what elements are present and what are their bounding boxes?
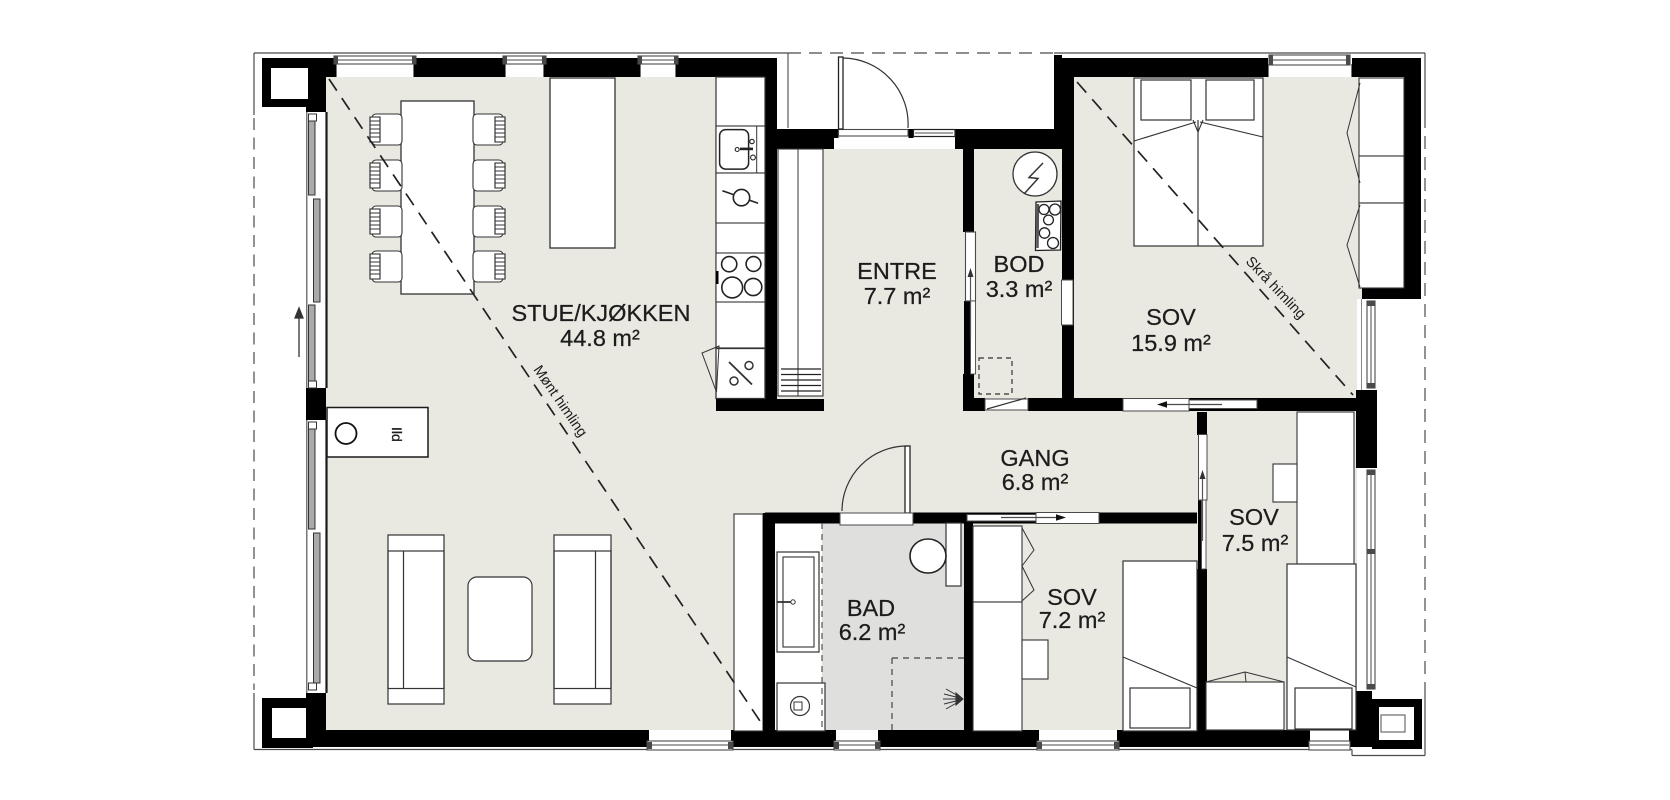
svg-text:7.5 m²: 7.5 m² <box>1222 530 1289 556</box>
svg-text:STUE/KJØKKEN: STUE/KJØKKEN <box>512 300 691 326</box>
svg-text:44.8 m²: 44.8 m² <box>560 325 640 351</box>
svg-text:3.3 m²: 3.3 m² <box>986 276 1053 302</box>
svg-text:7.2 m²: 7.2 m² <box>1039 607 1106 633</box>
svg-text:GANG: GANG <box>1000 445 1069 471</box>
svg-text:SOV: SOV <box>1229 504 1279 530</box>
svg-text:BAD: BAD <box>847 595 895 621</box>
svg-text:6.8 m²: 6.8 m² <box>1002 469 1069 495</box>
svg-text:6.2 m²: 6.2 m² <box>839 619 906 645</box>
svg-text:ENTRE: ENTRE <box>857 258 937 284</box>
svg-text:BOD: BOD <box>994 251 1045 277</box>
svg-text:Ild: Ild <box>389 427 405 442</box>
svg-text:SOV: SOV <box>1146 304 1196 330</box>
svg-text:15.9 m²: 15.9 m² <box>1131 330 1211 356</box>
svg-text:7.7 m²: 7.7 m² <box>864 283 931 309</box>
